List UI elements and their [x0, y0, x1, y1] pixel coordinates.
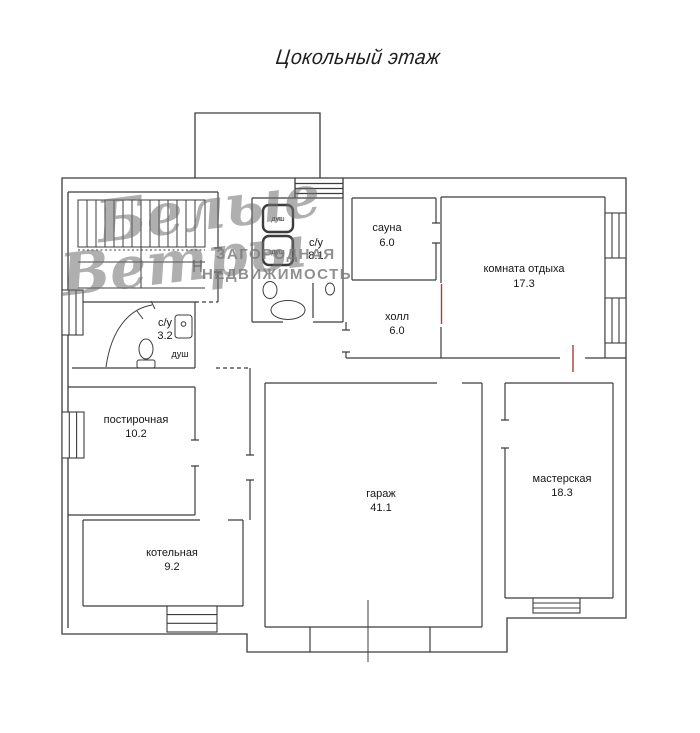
svg-text:6.0: 6.0 — [379, 237, 394, 249]
window-bottom-workshop — [533, 598, 580, 613]
room-label-wc-3-2: с/у 3.2 — [157, 317, 172, 342]
staircase — [78, 200, 205, 288]
window-left-1 — [62, 290, 83, 335]
room-label-laundry: постирочная 10.2 — [104, 414, 169, 440]
room-label-boiler: котельная 9.2 — [146, 547, 198, 573]
shower-label-1: душ — [271, 216, 285, 223]
floor-title: Цокольный этаж — [254, 46, 462, 70]
svg-text:сауна: сауна — [372, 222, 402, 234]
window-right-1 — [605, 213, 626, 258]
svg-text:9.2: 9.2 — [164, 561, 179, 573]
shower-label-3: душ — [172, 349, 189, 359]
svg-text:мастерская: мастерская — [533, 473, 592, 485]
svg-text:с/у: с/у — [309, 237, 324, 249]
svg-text:с/у: с/у — [158, 317, 173, 329]
svg-text:комната отдыха: комната отдыха — [483, 263, 565, 275]
room-label-wc-8-1: с/у 8.1 — [308, 237, 323, 262]
floor-plan-drawing: сауна 6.0 комната отдыха 17.3 с/у 8.1 хо… — [0, 0, 700, 733]
door-swing-marks — [442, 284, 574, 372]
room-label-hall: холл 6.0 — [385, 311, 409, 337]
fixtures — [106, 205, 335, 368]
floor-plan-page: Цокольный этаж — [0, 0, 700, 733]
svg-text:холл: холл — [385, 311, 409, 323]
svg-text:41.1: 41.1 — [370, 502, 391, 514]
svg-text:6.0: 6.0 — [389, 325, 404, 337]
shower-curtain-arc — [106, 305, 152, 367]
room-label-sauna: сауна 6.0 — [372, 222, 402, 249]
entrance-porch — [195, 113, 320, 178]
room-label-workshop: мастерская 18.3 — [533, 473, 592, 499]
shower-label-2: душ — [271, 249, 285, 256]
svg-text:17.3: 17.3 — [513, 278, 534, 290]
svg-text:3.2: 3.2 — [157, 330, 172, 342]
toilet-2 — [139, 339, 153, 359]
svg-text:постирочная: постирочная — [104, 414, 169, 426]
svg-text:котельная: котельная — [146, 547, 198, 559]
svg-text:18.3: 18.3 — [551, 487, 572, 499]
window-bottom-boiler — [167, 606, 217, 632]
svg-text:10.2: 10.2 — [125, 428, 146, 440]
sink-1 — [326, 283, 335, 295]
svg-text:8.1: 8.1 — [308, 250, 323, 262]
window-left-2 — [62, 412, 84, 458]
svg-text:гараж: гараж — [366, 488, 396, 500]
bathtub — [271, 301, 305, 320]
room-label-rest-room: комната отдыха 17.3 — [483, 263, 565, 290]
toilet-1 — [263, 282, 277, 299]
entrance-steps — [295, 178, 343, 198]
window-right-2 — [605, 298, 626, 343]
room-label-garage: гараж 41.1 — [366, 488, 396, 514]
